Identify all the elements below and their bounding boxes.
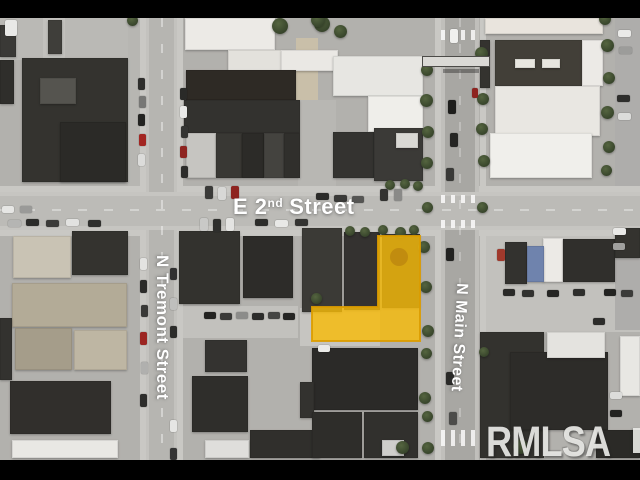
letterbox-bar-top	[0, 0, 640, 18]
tree	[419, 392, 431, 404]
parked-car	[140, 280, 147, 293]
parked-car	[255, 219, 268, 226]
tree	[477, 93, 489, 105]
tree	[395, 227, 406, 238]
parked-car	[140, 332, 147, 345]
building-roof	[368, 96, 423, 132]
tree	[396, 441, 409, 454]
parked-car	[522, 290, 534, 297]
tree	[603, 141, 615, 153]
building-roof	[0, 318, 12, 380]
building-roof	[312, 348, 418, 410]
tree	[420, 281, 432, 293]
building-roof	[582, 40, 603, 86]
building-roof	[284, 133, 300, 178]
parked-car	[26, 219, 39, 226]
parked-car	[140, 394, 147, 407]
parked-car	[295, 219, 308, 226]
parked-car	[140, 258, 147, 270]
building-roof	[72, 231, 128, 275]
tree	[476, 123, 488, 135]
parked-car	[394, 189, 402, 201]
parking-lot	[182, 306, 298, 338]
parked-car	[618, 30, 631, 37]
listing-image-frame: E 2ndStreet N Tremont Street N Main Stre…	[0, 0, 640, 480]
parked-car	[139, 96, 146, 108]
building-roof	[0, 60, 14, 104]
building-roof	[40, 78, 76, 104]
tree	[311, 293, 322, 304]
building-roof	[527, 246, 544, 282]
parked-car	[618, 113, 631, 120]
building-roof	[505, 242, 527, 284]
tree	[409, 225, 419, 235]
parked-car	[450, 133, 458, 147]
building-roof	[242, 133, 264, 178]
skywalk-shadow	[443, 69, 479, 73]
tree	[378, 225, 388, 235]
building-roof	[547, 332, 605, 358]
tree	[360, 227, 370, 237]
tree	[421, 157, 433, 169]
tree	[478, 155, 490, 167]
tree	[421, 348, 432, 359]
street-label-superscript: nd	[268, 196, 284, 210]
parked-car	[613, 243, 625, 250]
parked-car	[573, 289, 585, 296]
parked-car	[380, 189, 388, 201]
parked-car	[170, 448, 177, 460]
parked-car	[8, 220, 21, 227]
parked-car	[275, 220, 288, 227]
building-roof	[620, 336, 640, 396]
parked-car	[141, 305, 148, 317]
tree	[422, 202, 433, 213]
building-roof	[15, 328, 72, 370]
tree	[422, 411, 433, 422]
parked-car	[2, 206, 14, 213]
tree	[400, 179, 410, 189]
building-roof	[179, 231, 240, 304]
parked-car	[446, 168, 454, 181]
crosswalk	[441, 430, 479, 446]
tree	[334, 25, 347, 38]
building-roof	[543, 238, 563, 282]
building-roof	[243, 236, 293, 298]
parked-car	[268, 312, 280, 319]
parked-car	[497, 249, 505, 261]
parked-car	[138, 114, 145, 126]
building-roof	[333, 132, 374, 178]
parked-car	[204, 312, 216, 319]
parked-car	[200, 218, 208, 231]
parked-car	[139, 134, 146, 146]
building-roof	[12, 283, 127, 327]
parking-lot	[300, 308, 380, 346]
building-roof	[542, 59, 560, 68]
tree	[477, 202, 488, 213]
parked-car	[619, 47, 632, 54]
parked-car	[66, 219, 79, 226]
building-roof	[216, 133, 242, 178]
parked-car	[472, 88, 478, 98]
mls-watermark-clipped-letter	[633, 428, 640, 453]
parked-car	[236, 312, 248, 319]
parked-car	[450, 29, 458, 43]
parked-car	[547, 290, 559, 297]
building-roof	[60, 122, 126, 182]
building-roof	[205, 440, 249, 458]
parked-car	[283, 313, 295, 320]
parked-car	[318, 345, 330, 352]
street-label-n-tremont: N Tremont Street	[152, 255, 172, 430]
building-roof	[281, 50, 338, 71]
street-label-e-2nd: E 2ndStreet	[233, 194, 355, 220]
building-roof	[74, 330, 127, 370]
crosswalk	[441, 195, 479, 203]
tree	[413, 181, 423, 191]
parked-car	[446, 248, 454, 261]
parked-car	[205, 186, 213, 199]
building-roof	[302, 228, 342, 312]
street-label-suffix: Street	[289, 194, 354, 219]
parked-car	[180, 106, 187, 118]
aerial-satellite-photo: E 2ndStreet N Tremont Street N Main Stre…	[0, 0, 640, 480]
building-roof	[333, 56, 423, 96]
building-roof	[344, 232, 380, 310]
building-roof	[250, 430, 320, 458]
tree	[601, 106, 614, 119]
parking-lot	[0, 18, 146, 60]
building-roof	[10, 381, 111, 434]
tree	[345, 226, 355, 236]
parked-car	[88, 220, 101, 227]
parked-car	[5, 20, 17, 36]
parked-car	[141, 362, 148, 374]
parked-car	[46, 220, 59, 227]
parked-car	[621, 290, 633, 297]
building-roof	[264, 133, 284, 178]
building-roof	[186, 70, 296, 100]
parked-car	[20, 206, 32, 213]
building-roof	[396, 133, 418, 148]
building-roof	[205, 340, 247, 372]
parking-lot	[615, 18, 640, 330]
tree	[603, 72, 615, 84]
tree	[422, 442, 434, 454]
parked-car	[503, 289, 515, 296]
parked-car	[180, 88, 187, 100]
building-roof	[490, 133, 592, 178]
parked-car	[220, 313, 232, 320]
parked-car	[138, 78, 145, 90]
tree	[420, 94, 433, 107]
tree	[272, 18, 288, 34]
parked-car	[613, 228, 626, 235]
building-roof	[312, 412, 362, 458]
parked-car	[252, 313, 264, 320]
parking-lot	[298, 100, 336, 192]
building-roof	[495, 86, 600, 136]
building-roof	[13, 236, 71, 278]
building-roof	[185, 18, 275, 50]
building-roof	[12, 440, 118, 458]
parked-car	[610, 410, 622, 417]
crosswalk	[441, 220, 479, 228]
building-roof	[192, 376, 248, 432]
building-roof	[563, 239, 615, 282]
tree	[479, 347, 489, 357]
tree	[422, 325, 434, 337]
parked-car	[604, 289, 616, 296]
parked-car	[449, 412, 457, 425]
tree	[418, 241, 430, 253]
parked-car	[617, 95, 630, 102]
parked-car	[181, 166, 188, 178]
letterbox-bar-bottom	[0, 460, 640, 480]
building-roof	[184, 100, 300, 133]
tree	[601, 165, 612, 176]
parked-car	[448, 100, 456, 114]
skywalk-bridge	[422, 56, 490, 67]
street-label-prefix: E 2	[233, 194, 268, 219]
parked-car	[213, 219, 221, 232]
building-roof	[485, 18, 603, 34]
parked-car	[218, 187, 226, 200]
building-roof	[186, 133, 216, 178]
crosswalk	[441, 30, 479, 40]
parked-car	[593, 318, 605, 325]
building-roof	[382, 234, 420, 308]
parked-car	[181, 126, 188, 138]
building-roof	[495, 40, 583, 86]
parked-car	[610, 392, 622, 399]
parked-car	[138, 154, 145, 166]
building-roof	[515, 59, 535, 68]
tree	[601, 39, 614, 52]
building-roof	[48, 20, 62, 54]
parked-car	[180, 146, 187, 158]
tree	[422, 126, 434, 138]
